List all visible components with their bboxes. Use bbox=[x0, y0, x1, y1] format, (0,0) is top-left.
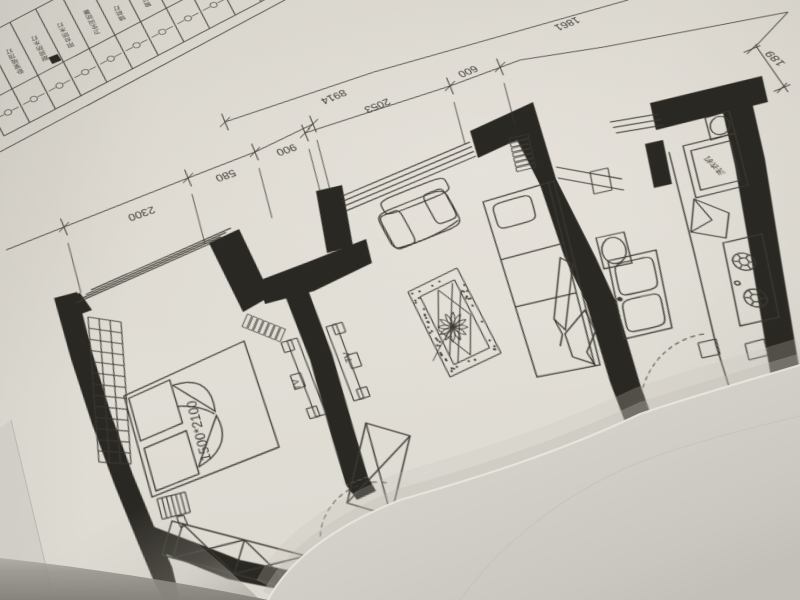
svg-text:TV: TV bbox=[341, 350, 355, 363]
svg-text:8914: 8914 bbox=[318, 88, 349, 107]
svg-text:1861: 1861 bbox=[552, 15, 583, 33]
svg-text:189: 189 bbox=[762, 49, 788, 67]
svg-text:2053: 2053 bbox=[362, 96, 393, 115]
svg-text:卫生间防雾: 卫生间防雾 bbox=[82, 8, 102, 35]
svg-text:580: 580 bbox=[213, 167, 238, 184]
svg-text:阳台防水灯: 阳台防水灯 bbox=[55, 21, 75, 49]
svg-text:600: 600 bbox=[455, 64, 480, 80]
svg-text:2300: 2300 bbox=[126, 204, 157, 223]
svg-text:镜前灯: 镜前灯 bbox=[112, 4, 127, 22]
svg-text:900: 900 bbox=[274, 142, 299, 158]
svg-text:筒灯: 筒灯 bbox=[140, 0, 153, 9]
svg-text:卧室吸顶灯: 卧室吸顶灯 bbox=[4, 47, 24, 75]
svg-text:洗衣机: 洗衣机 bbox=[701, 155, 727, 177]
svg-text:厨房防水灯: 厨房防水灯 bbox=[29, 34, 49, 62]
